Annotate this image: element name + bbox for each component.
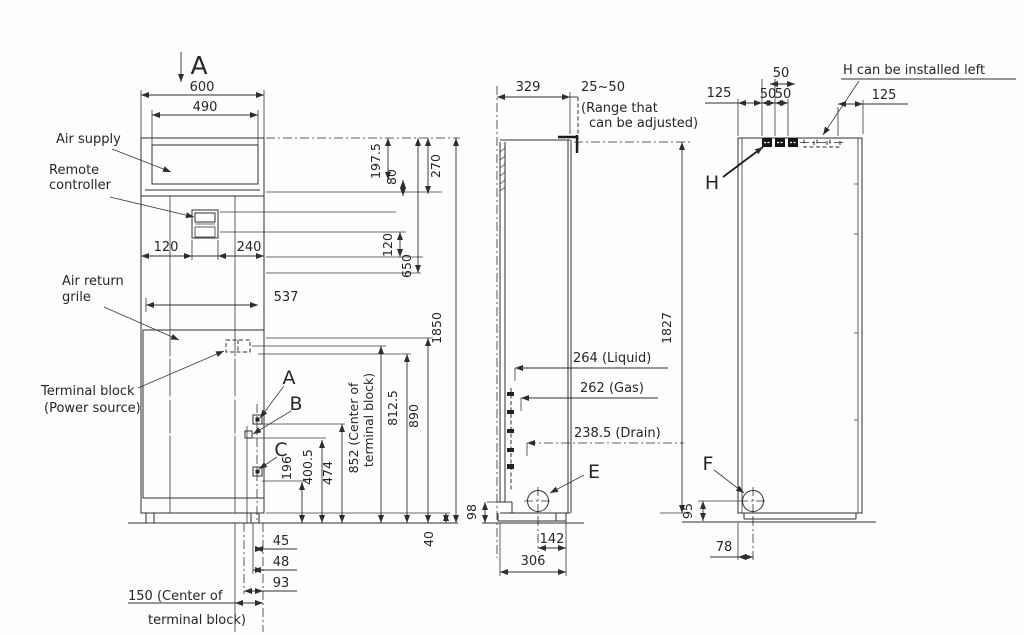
dim-1850: 1850	[429, 312, 444, 344]
callout-b: B	[289, 393, 302, 415]
dim-329: 329	[516, 80, 541, 95]
dim-78: 78	[716, 540, 733, 555]
drawing-page: A 600 490 Air supply Remote controller A…	[0, 0, 1024, 635]
callout-f: F	[703, 453, 714, 475]
hanger-knockouts-alt	[800, 138, 846, 147]
label-remote-2: controller	[49, 178, 112, 193]
range-note-1: (Range that	[581, 101, 658, 116]
note-leader	[823, 81, 859, 135]
label-air-supply: Air supply	[56, 132, 121, 147]
dim-197-5: 197.5	[368, 143, 383, 179]
air-supply-grille	[152, 145, 258, 184]
dim-45: 45	[273, 534, 290, 549]
dim-890: 890	[406, 404, 421, 428]
dim-400-5: 400.5	[300, 449, 315, 485]
dim-120-left: 120	[154, 240, 179, 255]
dim-306: 306	[521, 554, 546, 569]
dim-1827: 1827	[659, 312, 674, 344]
dim-852-line2: terminal block)	[361, 373, 376, 467]
label-terminal-2: (Power source)	[44, 401, 141, 416]
dim-gas: 262 (Gas)	[580, 381, 644, 396]
dim-25-50: 25~50	[581, 80, 625, 95]
front-unit-outline	[141, 138, 264, 513]
dim-150-line1: 150 (Center of	[128, 589, 223, 604]
front-label-leaders	[104, 149, 291, 469]
f-leader	[714, 470, 744, 493]
dim-120-right: 120	[380, 233, 395, 257]
dim-drain: 238.5 (Drain)	[574, 426, 661, 441]
note-h-install: H can be installed left	[843, 63, 985, 78]
front-dimension-lines	[128, 52, 456, 603]
remote-controller-panel	[195, 227, 215, 237]
dim-50-top: 50	[773, 66, 790, 81]
dim-40: 40	[421, 531, 436, 547]
rear-base	[744, 513, 856, 519]
dim-98: 98	[464, 504, 479, 520]
dim-95: 95	[680, 503, 695, 519]
rear-edge-ticks	[854, 184, 858, 420]
rear-outline	[738, 138, 862, 513]
knockout-a	[253, 415, 262, 424]
remote-controller-display	[195, 213, 215, 222]
dim-80: 80	[384, 169, 399, 185]
dim-50-b: 50	[775, 87, 792, 102]
label-remote-1: Remote	[49, 163, 99, 178]
front-panel-joints	[170, 196, 235, 513]
callout-h: H	[705, 172, 719, 194]
rear-dimension-lines	[703, 79, 1016, 557]
technical-drawing: A 600 490 Air supply Remote controller A…	[0, 0, 1024, 635]
callout-a: A	[283, 367, 296, 389]
dim-650: 650	[399, 254, 414, 278]
dim-270: 270	[428, 154, 443, 178]
dim-537: 537	[274, 290, 299, 305]
grille-scan-streaks	[144, 356, 263, 436]
terminal-block	[226, 340, 250, 352]
rear-extension-lines	[698, 79, 863, 560]
dim-196: 196	[279, 456, 294, 480]
dim-125-left: 125	[707, 86, 732, 101]
dim-812-5: 812.5	[385, 390, 400, 426]
hanger-knockouts-solid	[762, 138, 798, 147]
side-grille-hatch	[500, 148, 505, 191]
dim-93: 93	[273, 576, 290, 591]
label-return-2: grile	[62, 290, 91, 305]
label-terminal-1: Terminal block	[40, 384, 135, 399]
dim-600: 600	[190, 80, 215, 95]
grille-frame-lines	[141, 190, 264, 196]
remote-controller	[192, 210, 218, 238]
label-return-1: Air return	[62, 274, 124, 289]
side-base	[498, 513, 566, 521]
dim-852-line1: 852 (Center of	[346, 382, 361, 473]
dim-142: 142	[540, 532, 565, 547]
rear-view: 125 50 50 50 H can be installed left 125…	[680, 63, 1016, 560]
dim-liquid: 264 (Liquid)	[573, 351, 651, 366]
air-return-grille	[143, 330, 264, 498]
dim-474: 474	[320, 461, 335, 485]
dim-150-line2: terminal block)	[148, 613, 246, 628]
front-view: A 600 490 Air supply Remote controller A…	[40, 51, 460, 632]
range-note-2: can be adjusted)	[589, 116, 698, 131]
dim-125-right: 125	[872, 88, 897, 103]
front-base	[146, 513, 259, 523]
side-view: 329 25~50 (Range that can be adjusted) 2…	[464, 80, 698, 576]
dim-240: 240	[237, 240, 262, 255]
h-leader	[723, 147, 763, 177]
side-outline	[500, 140, 571, 513]
callout-e: E	[588, 461, 600, 483]
dim-490: 490	[193, 100, 218, 115]
rear-inner-edges	[742, 138, 858, 513]
section-label: A	[190, 51, 207, 80]
dim-48: 48	[273, 555, 290, 570]
